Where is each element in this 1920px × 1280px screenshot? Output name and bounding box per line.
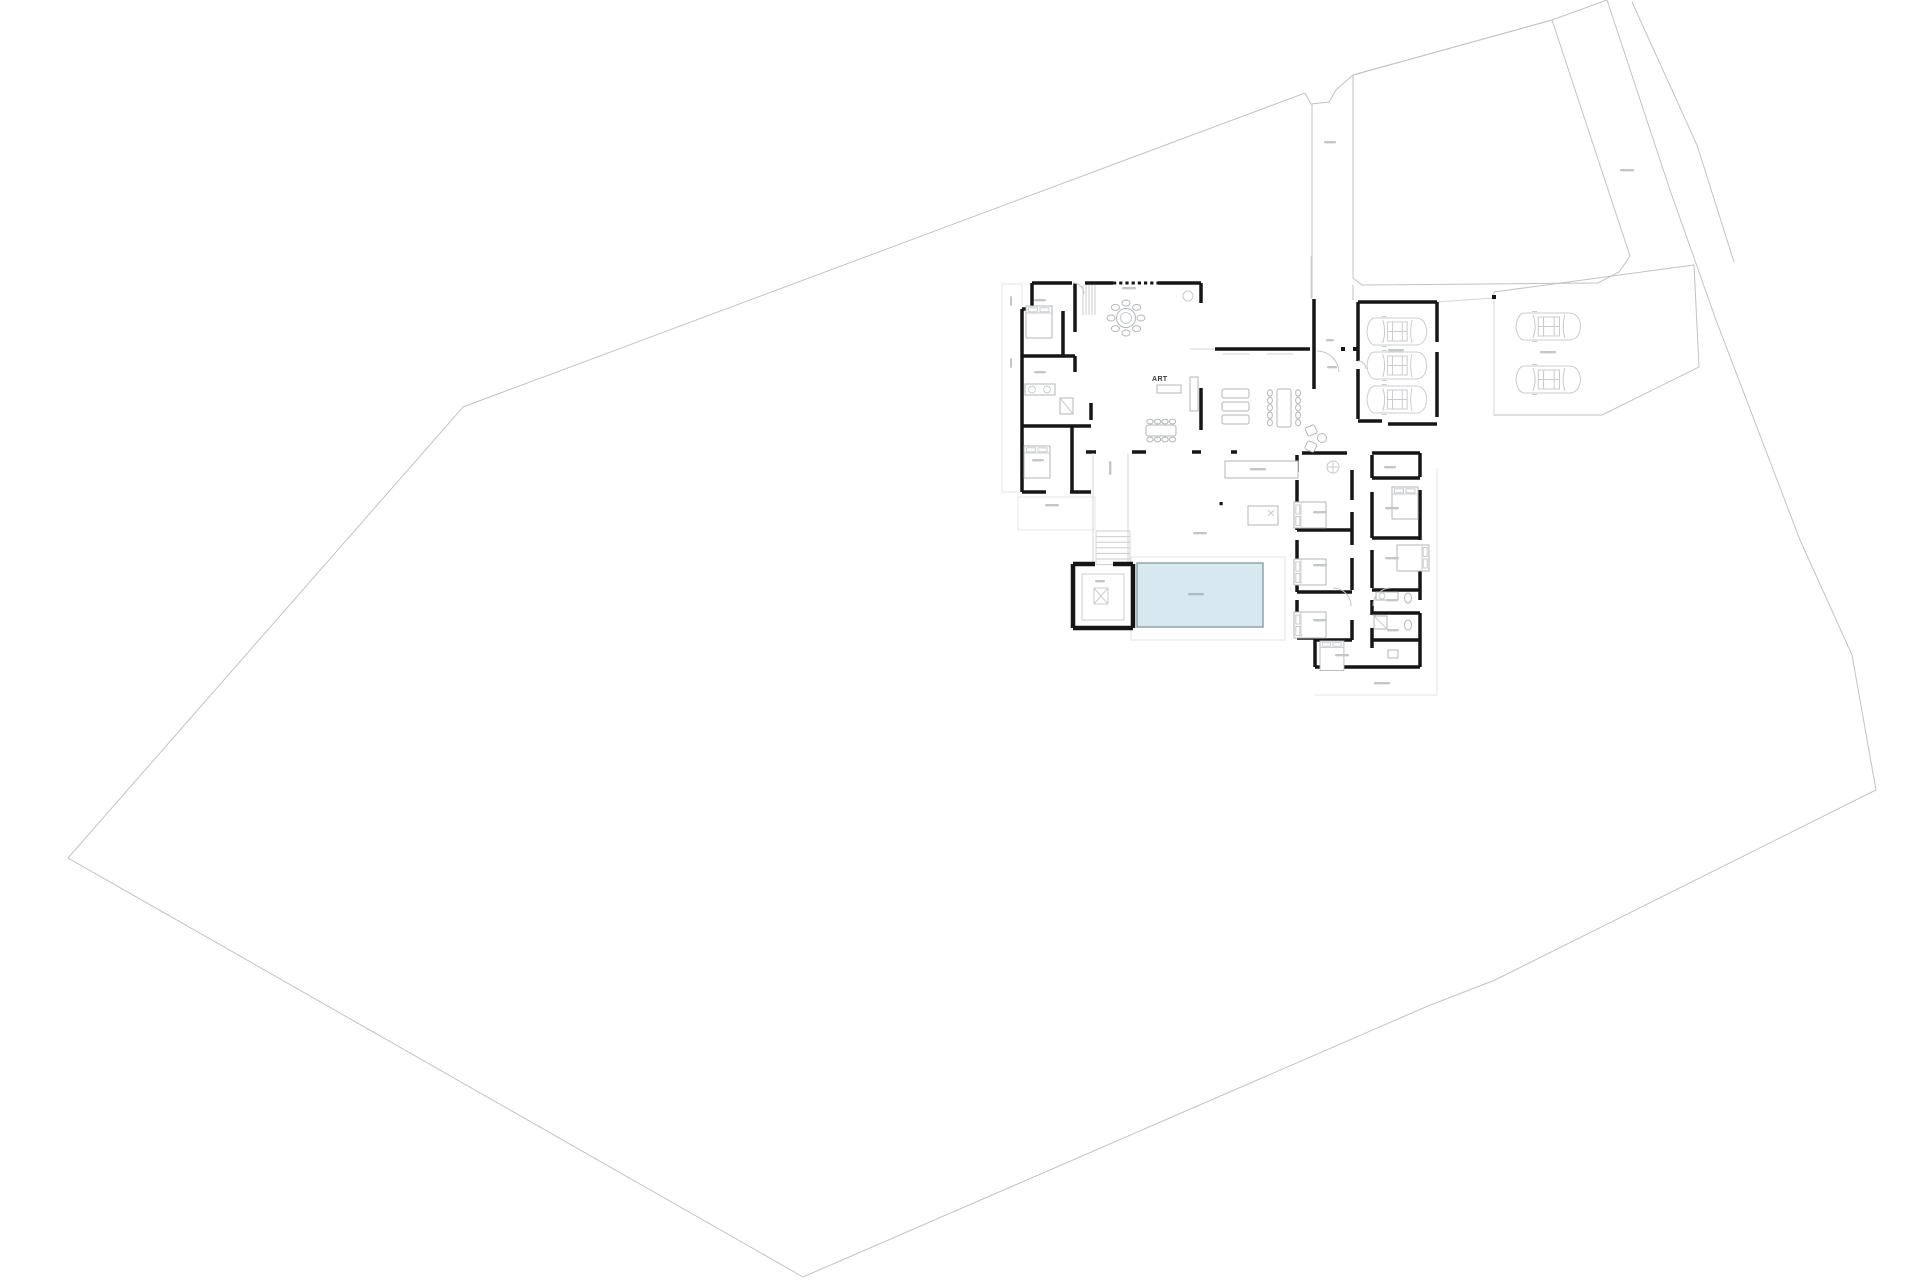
long-dining-table [1268, 389, 1301, 427]
garage-car [1367, 385, 1427, 415]
stairs [1096, 531, 1130, 565]
bed [1294, 612, 1326, 638]
illegible-label [1010, 358, 1012, 368]
garage-car [1367, 351, 1427, 381]
guest-parking-court [1437, 265, 1699, 415]
illegible-label [1540, 351, 1556, 353]
illegible-label [1374, 682, 1390, 684]
ceiling-fan [1327, 461, 1339, 473]
door-arc [1358, 361, 1366, 369]
media-desk [1248, 506, 1278, 525]
site-plan-page: ART [0, 0, 1920, 1280]
dining-table-round [1107, 300, 1145, 336]
parking-car [1516, 312, 1581, 342]
great-room: ART [1083, 285, 1327, 525]
illegible-label [1326, 339, 1334, 341]
illegible-label [1313, 564, 1327, 566]
swimming-pool [1137, 563, 1263, 627]
armchair-nook [1304, 424, 1326, 452]
illegible-label [1620, 169, 1634, 171]
illegible-label [1324, 141, 1336, 143]
illegible-label [1250, 468, 1266, 470]
illegible-label [1122, 287, 1136, 289]
illegible-label [1313, 619, 1327, 621]
family-terrace [1193, 532, 1207, 534]
garage [1367, 317, 1427, 415]
illegible-label [1385, 557, 1399, 559]
spa-tub [1094, 588, 1108, 604]
illegible-label [1010, 296, 1012, 306]
sofa-group [1222, 389, 1249, 424]
illegible-label [1095, 580, 1105, 582]
illegible-label [1386, 599, 1398, 601]
carport-edge [1437, 298, 1494, 415]
illegible-label [1188, 593, 1204, 595]
bathroom-fixtures [1025, 384, 1073, 414]
illegible-label [1045, 504, 1059, 506]
door-arc [1317, 351, 1339, 372]
breakfast-table [1146, 419, 1176, 442]
bed [1392, 487, 1418, 519]
illegible-label [1193, 532, 1207, 534]
illegible-label [1034, 371, 1046, 373]
spa-room [1073, 564, 1133, 628]
illegible-label [1385, 507, 1399, 509]
bed [1294, 502, 1326, 528]
bathroom-fixtures [1374, 592, 1412, 658]
illegible-label [1388, 349, 1404, 351]
illegible-label [1384, 466, 1396, 468]
art-label: ART [1152, 376, 1168, 383]
illegible-label [1335, 654, 1349, 656]
motor-court [1312, 20, 1634, 300]
property-boundary [68, 0, 1876, 1277]
site-plan-canvas: ART [0, 0, 1920, 1280]
parking-car [1516, 365, 1581, 395]
illegible-label [1327, 366, 1337, 368]
illegible-label [1032, 459, 1044, 461]
road-edge-line [1632, 2, 1734, 262]
bed [1026, 306, 1052, 338]
illegible-label [1387, 629, 1399, 631]
illegible-label [1109, 461, 1111, 475]
illegible-label [1034, 299, 1046, 301]
driveway-corridor [1312, 104, 1353, 300]
bed [1294, 559, 1326, 585]
kitchen-island [1225, 461, 1298, 478]
bed [1024, 446, 1050, 478]
garage-car [1367, 317, 1427, 347]
bed [1397, 545, 1429, 571]
illegible-label [1313, 511, 1327, 513]
